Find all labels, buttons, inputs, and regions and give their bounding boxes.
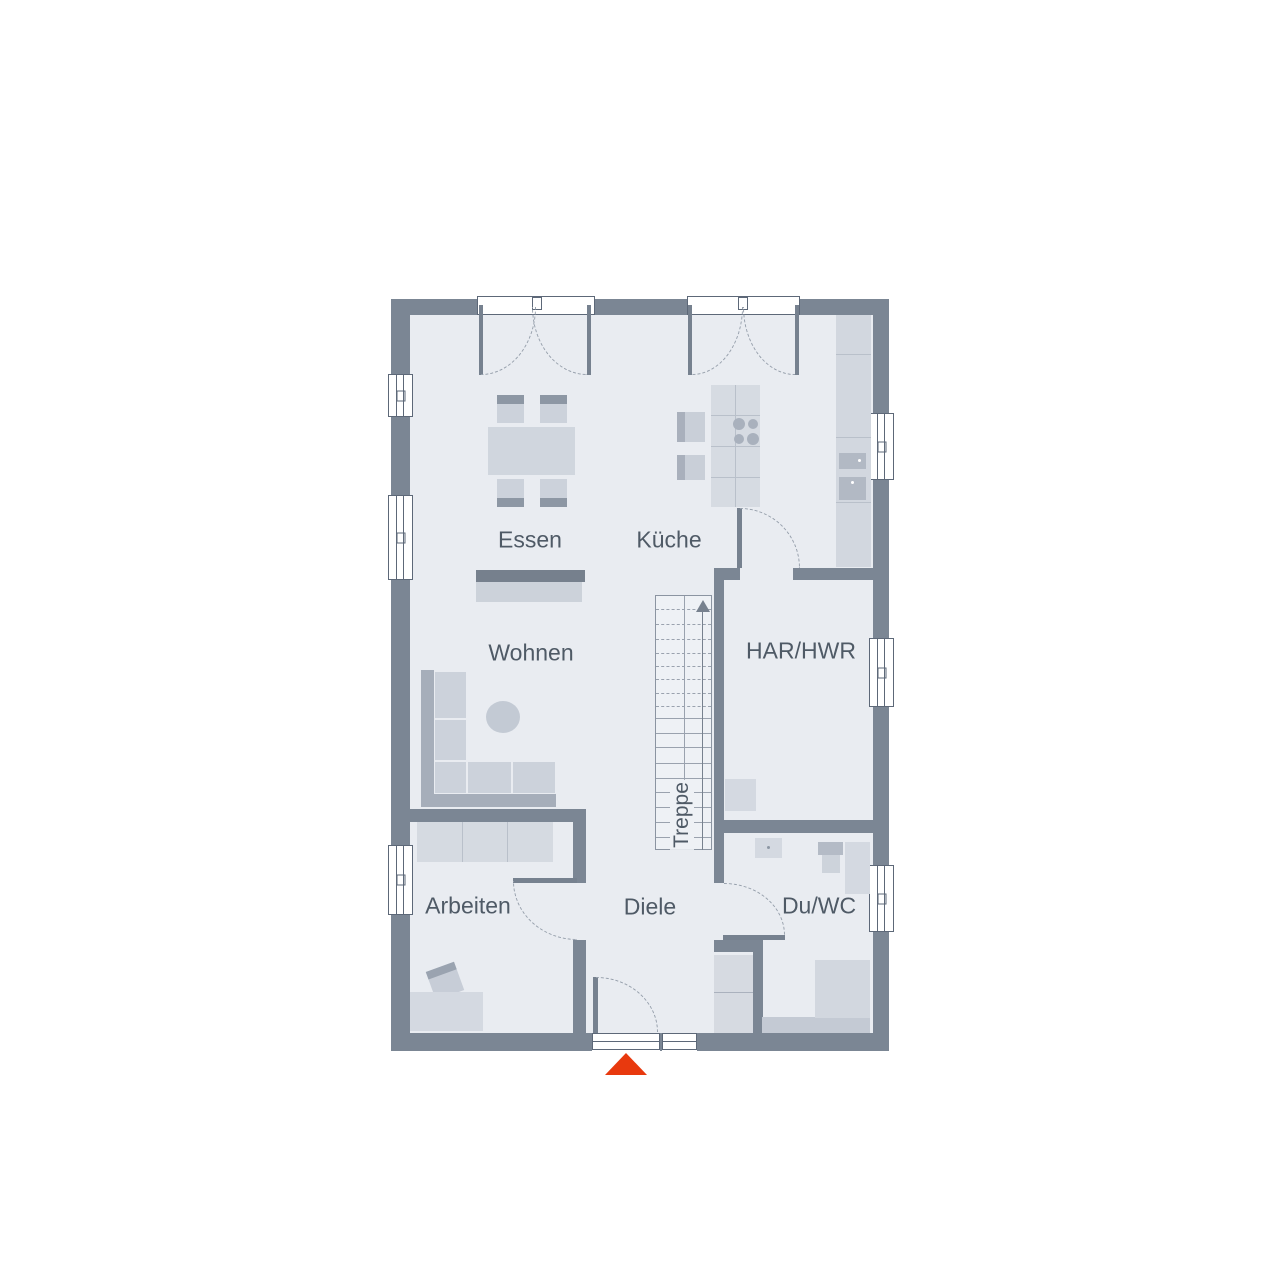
wall-segment (873, 707, 889, 865)
kitchen-counter (836, 315, 871, 567)
floor-area (410, 315, 873, 1033)
closet-divider (714, 992, 753, 993)
wall-segment (573, 940, 586, 1033)
sofa-seat (467, 761, 512, 794)
wall-segment (873, 299, 889, 413)
window (869, 865, 894, 932)
kitchen-island (711, 385, 760, 507)
chair-back (497, 498, 524, 507)
wall-segment (573, 809, 586, 883)
wall-segment (793, 568, 873, 580)
room-label-du-wc: Du/WC (782, 893, 856, 920)
window-handle-icon (877, 893, 886, 904)
built-in-appliance (839, 453, 866, 469)
counter-divider (836, 437, 871, 438)
staircase: Treppe (655, 595, 712, 850)
wall-segment (391, 580, 410, 845)
sidelight-window (662, 1033, 697, 1050)
cooktop-burner (748, 419, 758, 429)
toilet-tank (818, 842, 843, 855)
sofa-back (421, 794, 556, 807)
wall-segment (873, 480, 889, 638)
window-handle-icon (877, 441, 886, 452)
wall-segment (595, 299, 687, 315)
coffee-table (486, 701, 520, 733)
utility-appliance (725, 779, 756, 811)
bar-stool (677, 412, 705, 442)
door-leaf (795, 305, 799, 375)
wall-segment (391, 1033, 592, 1051)
wall-segment (714, 568, 740, 580)
wall-segment (873, 932, 889, 1051)
window (869, 638, 894, 707)
sofa-seat (434, 719, 467, 761)
dining-table (488, 427, 575, 475)
cooktop-burner (734, 434, 744, 444)
washbasin (755, 838, 782, 858)
sideboard (476, 582, 582, 602)
dining-chair (497, 479, 524, 507)
shower (815, 960, 870, 1018)
room-label-arbeiten: Arbeiten (425, 893, 511, 920)
window-handle-icon (396, 390, 405, 401)
floor-plan: Treppe (391, 299, 889, 1051)
island-divider (711, 477, 760, 478)
wall-segment (697, 1033, 889, 1051)
sofa-back (421, 670, 434, 807)
chair-back (497, 395, 524, 404)
entrance-arrow-icon (605, 1053, 647, 1075)
shelf-divider (507, 822, 508, 862)
sideboard (476, 570, 585, 582)
chair-back (540, 498, 567, 507)
island-divider (711, 415, 760, 416)
room-label-wohnen: Wohnen (488, 640, 573, 667)
bath-cabinet (845, 842, 870, 894)
wall-segment (714, 820, 873, 833)
hall-closet (714, 955, 753, 1033)
shower-tray-edge (762, 1017, 870, 1033)
cooktop-burner (733, 418, 745, 430)
cooktop-burner (747, 433, 759, 445)
office-shelf (417, 822, 553, 862)
room-label-har-hwr: HAR/HWR (746, 638, 856, 665)
sofa-seat (434, 671, 467, 719)
window-handle-icon (396, 875, 405, 886)
room-label-kueche: Küche (636, 527, 701, 554)
oven (839, 477, 866, 500)
window (388, 845, 413, 915)
room-label-treppe: Treppe (670, 780, 694, 850)
wall-segment (714, 568, 724, 883)
toilet-bowl (822, 855, 840, 873)
appliance-dot-icon (858, 459, 861, 462)
window-handle-icon (877, 667, 886, 678)
bar-stool (677, 455, 705, 480)
counter-divider (836, 354, 871, 355)
wall-segment (410, 809, 585, 822)
floor-plan-canvas: Treppe (0, 0, 1280, 1280)
window-handle-icon (396, 532, 405, 543)
stairs-direction-line (702, 610, 703, 850)
room-label-diele: Diele (624, 894, 676, 921)
dining-chair (497, 395, 524, 423)
dining-chair (540, 395, 567, 423)
sofa-seat (512, 761, 556, 794)
office-desk (410, 992, 483, 1031)
appliance-dot-icon (851, 481, 854, 484)
island-divider (711, 446, 760, 447)
wall-segment (391, 417, 410, 495)
door-leaf (587, 305, 591, 375)
wall-segment (714, 940, 763, 952)
shelf-divider (462, 822, 463, 862)
wall-segment (391, 915, 410, 1051)
window (869, 413, 894, 480)
wall-segment (391, 299, 410, 374)
door-leaf (723, 935, 785, 940)
sofa-seat (434, 761, 467, 794)
dining-chair (540, 479, 567, 507)
room-label-essen: Essen (498, 527, 562, 554)
chair-back (540, 395, 567, 404)
counter-divider (836, 502, 871, 503)
window (388, 374, 413, 417)
entrance-door-frame (592, 1033, 660, 1050)
window (388, 495, 413, 580)
stairs-direction-arrow (696, 600, 710, 612)
faucet-icon (767, 846, 770, 849)
